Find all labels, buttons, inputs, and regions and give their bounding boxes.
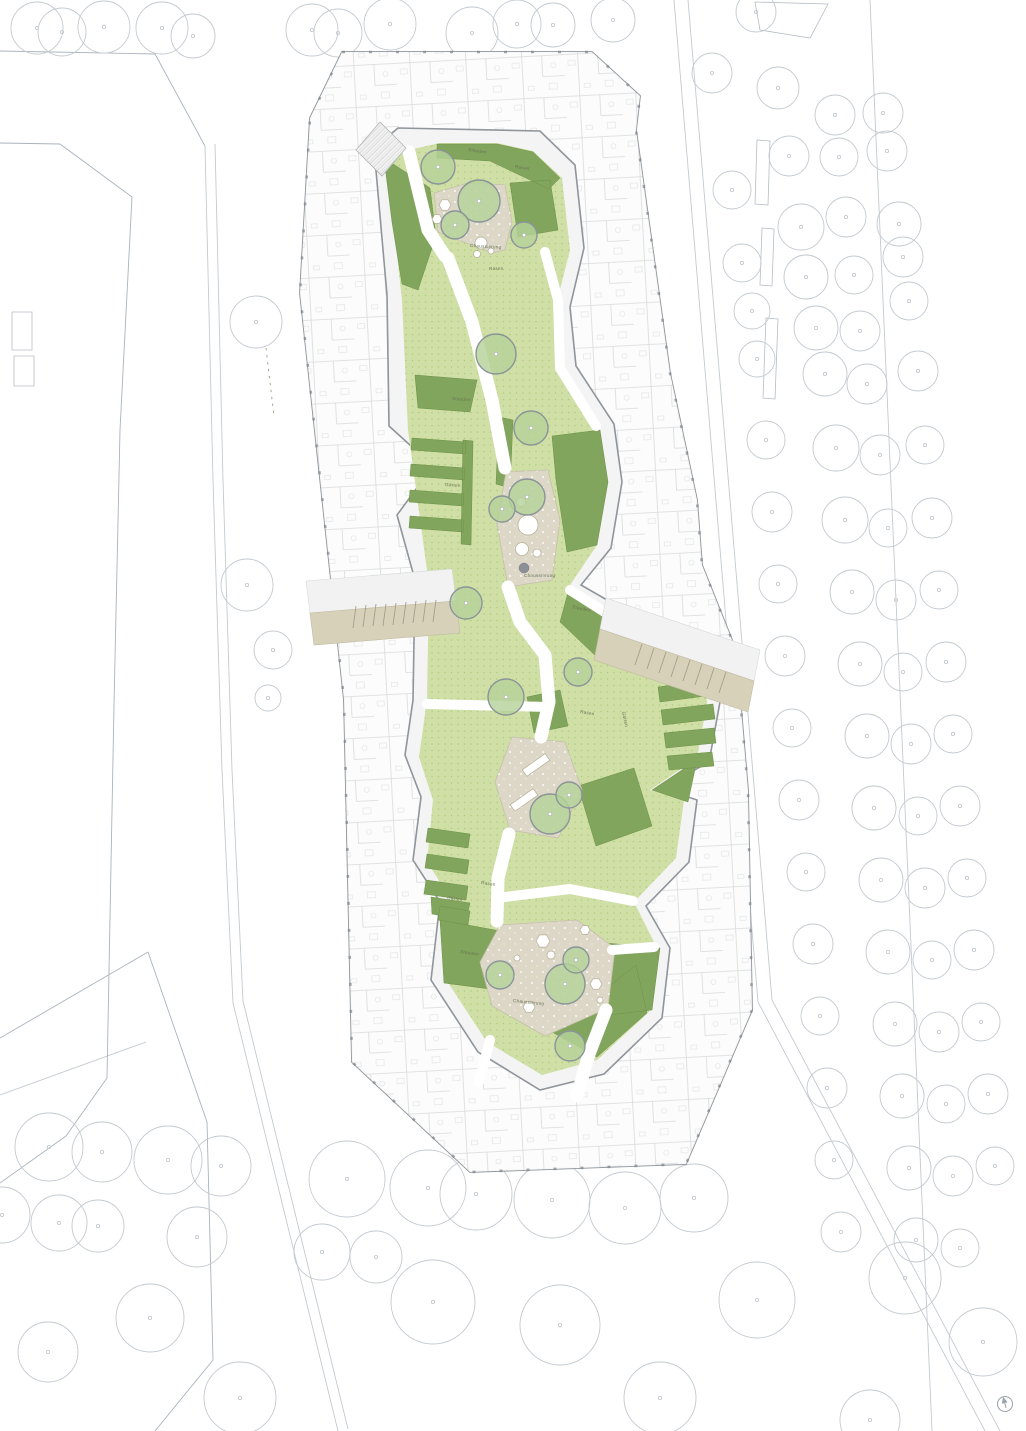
tree-icon [450, 587, 482, 619]
picnic-hexagon [432, 215, 442, 224]
play-circle [518, 515, 538, 535]
play-circle [597, 997, 603, 1003]
context-parcel [755, 2, 828, 38]
context-tree-icon [713, 171, 751, 209]
context-tree-icon [793, 924, 833, 964]
context-tree-icon [807, 1068, 847, 1108]
north-arrow-icon [996, 1395, 1014, 1413]
context-tree-icon [913, 941, 951, 979]
context-tree-icon [894, 1218, 938, 1262]
context-tree-icon [692, 53, 732, 93]
context-tree-icon [954, 930, 994, 970]
context-tree-icon [294, 1224, 350, 1280]
context-tree-icon [820, 138, 858, 176]
context-tree-icon [624, 1362, 696, 1431]
context-tree-icon [968, 1074, 1008, 1114]
context-tree-icon [520, 1285, 600, 1365]
context-tree-icon [350, 1231, 402, 1283]
context-tree-icon [838, 642, 882, 686]
context-tree-icon [18, 1322, 78, 1382]
context-tree-icon [0, 1187, 30, 1243]
context-tree-icon [859, 858, 903, 902]
context-tree-icon [873, 1002, 917, 1046]
picnic-hexagon [590, 979, 602, 989]
context-tree-icon [852, 786, 896, 830]
context-tree-icon [899, 797, 937, 835]
tree-icon [511, 222, 537, 248]
street-edge [0, 1042, 146, 1095]
context-tree-icon [765, 636, 805, 676]
street-edge [758, 1000, 1000, 1431]
context-tree-icon [221, 559, 273, 611]
context-tree-icon [847, 364, 887, 404]
context-tree-icon [204, 1362, 276, 1431]
context-tree-icon [933, 1156, 973, 1196]
context-tree-icon [835, 256, 873, 294]
tree-icon [476, 334, 516, 374]
context-tree-icon [286, 4, 338, 56]
context-tree-icon [660, 1164, 728, 1232]
context-tree-icon [940, 786, 980, 826]
parking-marking [266, 348, 274, 416]
context-tree-icon [919, 1012, 959, 1052]
context-tree-icon [883, 237, 923, 277]
context-tree-icon [734, 293, 770, 329]
context-tree-icon [784, 255, 828, 299]
well-circle [519, 563, 529, 573]
context-tree-icon [719, 1262, 795, 1338]
context-tree-icon [752, 492, 792, 532]
context-tree-icon [949, 1308, 1017, 1376]
context-tree-icon [72, 1122, 132, 1182]
context-tree-icon [493, 0, 541, 48]
context-tree-icon [11, 2, 63, 54]
context-tree-icon [723, 244, 761, 282]
context-tree-icon [171, 14, 215, 58]
tram-platform [12, 312, 34, 386]
tree-icon [556, 782, 582, 808]
context-tree-icon [826, 197, 866, 237]
context-tree-icon [877, 202, 921, 246]
context-tree-icon [927, 1085, 965, 1123]
context-tree-icon [589, 1172, 661, 1244]
context-tree-icon [531, 3, 575, 47]
play-circle [516, 543, 529, 556]
context-tree-icon [840, 1390, 900, 1431]
context-tree-icon [840, 311, 880, 351]
context-tree-icon [72, 1200, 124, 1252]
tree-icon [486, 961, 514, 989]
context-tree-icon [787, 853, 825, 891]
context-tree-icon [815, 95, 855, 135]
area-label: Rasen [489, 266, 504, 271]
context-tree-icon [801, 997, 839, 1035]
context-tree-icon [230, 296, 282, 348]
context-tree-icon [773, 709, 811, 747]
tree-icon [488, 679, 524, 715]
context-tree-icon [822, 497, 868, 543]
context-tree-icon [116, 1284, 184, 1352]
context-tree-icon [794, 306, 838, 350]
tree-icon [564, 658, 592, 686]
context-tree-icon [898, 351, 938, 391]
context-tree-icon [136, 2, 188, 54]
context-tree-icon [191, 1136, 251, 1196]
context-tree-icon [890, 282, 928, 320]
context-tree-icon [769, 136, 809, 176]
context-tree-icon [815, 1141, 853, 1179]
context-tree-icon [254, 631, 292, 669]
context-tree-icon [255, 685, 281, 711]
context-tree-icon [759, 565, 797, 603]
context-tree-icon [867, 131, 907, 171]
context-tree-icon [757, 67, 799, 109]
context-tree-icon [31, 1195, 87, 1251]
context-tree-icon [906, 426, 944, 464]
area-label: Chaussierung [524, 573, 556, 578]
context-tree-icon [891, 724, 931, 764]
context-tree-icon [736, 0, 776, 32]
tree-icon [441, 211, 469, 239]
tree-icon [421, 150, 455, 184]
context-tree-icon [962, 1003, 1000, 1041]
context-tree-icon [926, 642, 966, 682]
context-tree-icon [779, 780, 819, 820]
street-edge [0, 51, 205, 146]
context-tree-icon [821, 1212, 861, 1252]
site-plan: StaudenRasenChaussierungRasenStaudenGärt… [0, 0, 1026, 1431]
picnic-hexagon [439, 200, 451, 210]
tree-icon [489, 496, 515, 522]
context-tree-icon [813, 425, 859, 471]
play-circle [547, 951, 555, 959]
context-tree-icon [948, 859, 986, 897]
context-tree-icon [167, 1207, 227, 1267]
context-tree-icon [591, 0, 635, 42]
play-circle [533, 549, 541, 557]
context-tree-icon [934, 715, 972, 753]
picnic-hexagon [536, 935, 550, 947]
context-tree-icon [869, 509, 907, 547]
context-tree-icon [803, 352, 847, 396]
context-tree-icon [941, 1229, 979, 1267]
context-tree-icon [920, 571, 958, 609]
context-tree-icon [905, 868, 945, 908]
context-tree-icon [976, 1147, 1014, 1185]
play-circle [474, 251, 481, 258]
tree-icon [555, 1031, 585, 1061]
tree-icon [563, 947, 589, 973]
context-tree-icon [884, 653, 922, 691]
context-tree-icon [830, 570, 874, 614]
context-tree-icon [739, 341, 775, 377]
plan-canvas: StaudenRasenChaussierungRasenStaudenGärt… [0, 0, 1026, 1431]
context-tree-icon [863, 93, 903, 133]
tree-icon [514, 411, 548, 445]
context-tree-icon [887, 1146, 931, 1190]
context-tree-icon [866, 930, 910, 974]
context-tree-icon [778, 204, 824, 250]
context-tree-icon [860, 435, 900, 475]
context-tree-icon [869, 1242, 941, 1314]
context-tree-icon [845, 714, 889, 758]
context-tree-icon [390, 1150, 466, 1226]
play-circle [514, 955, 520, 961]
context-tree-icon [747, 421, 785, 459]
context-tree-icon [391, 1260, 475, 1344]
context-tree-icon [364, 0, 416, 50]
context-tree-icon [514, 1162, 590, 1238]
context-tree-icon [309, 1141, 385, 1217]
context-tree-icon [912, 498, 952, 538]
picnic-hexagon [580, 926, 590, 935]
